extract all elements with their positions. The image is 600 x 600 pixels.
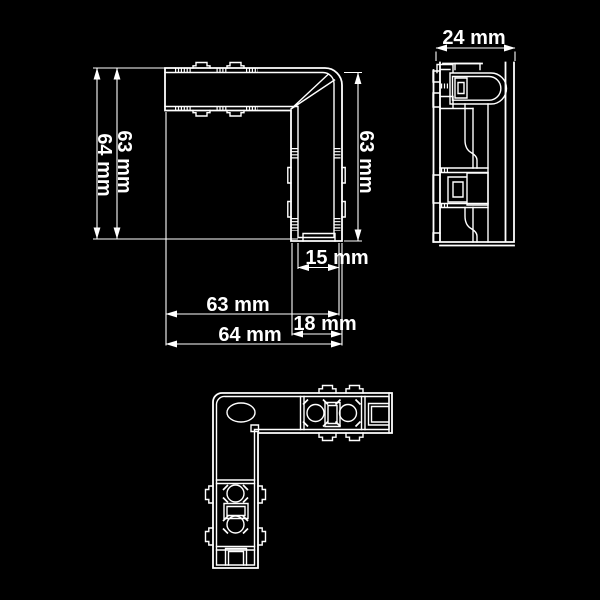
front-view: 64 mm 63 mm 63 mm 15 mm 63 mm 18 mm 64 m… [93,63,377,347]
bottom-varm-hole-1 [227,485,244,502]
front-dim-right-label: 63 mm [355,130,377,193]
front-dim-64mm-bottom-label: 64 mm [218,324,281,346]
front-side-bumps [288,168,345,218]
bottom-varm-end-socket [226,549,247,566]
side-view: 24 mm [433,27,515,246]
bottom-view [206,386,393,569]
side-middle-clip [433,173,488,205]
front-dim-63mm-bottom-label: 63 mm [206,294,269,316]
front-outer-profile [165,68,342,241]
bottom-harm-wedges [303,400,361,427]
front-dim-left-outer-label: 64 mm [93,133,115,196]
technical-drawing-canvas: 64 mm 63 mm 63 mm 15 mm 63 mm 18 mm 64 m… [0,0,600,600]
front-miter-lines [291,75,335,110]
bottom-harm-hole-1 [307,405,324,422]
side-channel-inner [453,77,501,101]
bottom-harm-end-socket [369,393,390,433]
side-mid-transition [465,104,477,168]
bottom-harm-hole-2 [340,405,357,422]
side-dim-24mm-label: 24 mm [442,27,505,49]
front-inner-walls [165,73,335,242]
front-dim-18mm-label: 18 mm [293,313,356,335]
side-extension-lines [436,52,515,62]
front-dim-left-inner-label: 63 mm [113,130,135,193]
side-channel-insert [455,78,467,98]
bottom-harm-dividers [301,397,366,430]
bottom-corner-oval [227,403,255,422]
technical-drawing: 64 mm 63 mm 63 mm 15 mm 63 mm 18 mm 64 m… [0,0,600,600]
front-dim-15mm-label: 15 mm [305,247,368,269]
